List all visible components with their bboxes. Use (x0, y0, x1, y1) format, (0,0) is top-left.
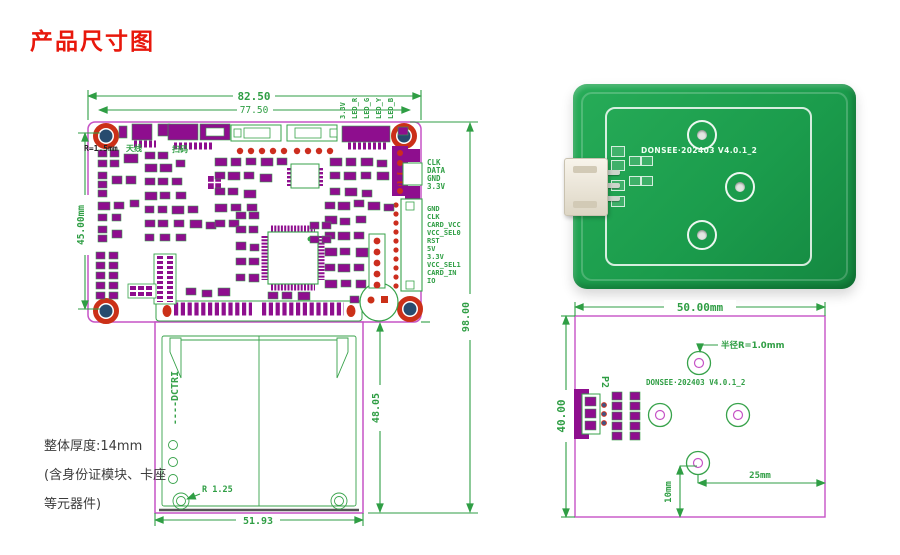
p3-connector (369, 234, 385, 288)
svg-text:CARD_IN: CARD_IN (427, 269, 457, 277)
svg-text:3.3V: 3.3V (427, 182, 446, 191)
dim-width-outer: 82.50 (237, 90, 270, 103)
svg-text:3.3V: 3.3V (427, 253, 445, 261)
dim-card-height: 48.05 (371, 393, 382, 423)
svg-text:GND: GND (427, 205, 440, 213)
silkscreen-text: DONSEE·202403 V4.0.1_2 (641, 146, 757, 155)
pin-holes-red (237, 148, 333, 154)
svg-text:IO: IO (427, 277, 435, 285)
connector1-pin-labels: CLK DATA GND 3.3V (427, 158, 446, 191)
note-line: (含身份证模块、卡座 (44, 461, 166, 490)
top-pin-labels: 3.3V LED_R LED_G LED_Y LED_B (339, 97, 395, 119)
dim-width: 50.00mm (677, 301, 724, 314)
svg-text:VCC_SEL1: VCC_SEL1 (427, 261, 461, 269)
card-connector (156, 300, 376, 321)
resistor-array (128, 284, 156, 298)
p2-label: P2 (599, 376, 610, 388)
svg-text:VCC_SEL0: VCC_SEL0 (427, 229, 461, 237)
screw-radius-label: R 1.25 (202, 485, 233, 495)
antenna-silkscreen-text: DONSEE·202403 V4.0.1_2 (646, 378, 745, 387)
dip-ic (154, 254, 176, 304)
svg-text:LED_R: LED_R (351, 97, 359, 119)
svg-text:LED_Y: LED_Y (375, 97, 383, 119)
hole-radius-label: 半径R=1.0mm (721, 340, 785, 351)
page-title: 产品尺寸图 (30, 22, 155, 56)
jst-connector (564, 158, 608, 216)
dim-card-width: 51.93 (243, 516, 273, 527)
note-line: 等元器件) (44, 490, 166, 519)
antenna-dimension-drawing: P2 50.00mm 40.00 10mm 25mm 半径R=1.0mm DON… (555, 298, 890, 550)
page: 产品尺寸图 ----DCTRI (0, 0, 900, 555)
smd-components (611, 146, 625, 157)
mount-hole-bottom (687, 220, 717, 250)
card-slot-label: ----DCTRI (170, 371, 181, 425)
svg-text:CARD_VCC: CARD_VCC (427, 221, 461, 229)
thickness-notes: 整体厚度:14mm (含身份证模块、卡座 等元器件) (44, 432, 166, 519)
svg-text:CLK: CLK (427, 213, 440, 221)
connector2-pin-labels: GND CLK CARD_VCC VCC_SEL0 RST 5V 3.3V VC… (427, 205, 461, 285)
dim-total-height: 98.00 (461, 302, 472, 332)
svg-text:LED_G: LED_G (363, 98, 371, 119)
svg-text:3.3V: 3.3V (339, 101, 347, 119)
small-ic (289, 164, 321, 188)
note-line: 整体厚度:14mm (44, 432, 166, 461)
dim-height: 40.00 (555, 399, 568, 432)
antenna-label: 天线 (126, 143, 142, 153)
dim-hole-offset-x: 25mm (749, 471, 771, 481)
scan-label: 扫码 (172, 144, 188, 154)
mount-hole-right (725, 172, 755, 202)
antenna-board-photo: DONSEE·202403 V4.0.1_2 (556, 64, 860, 296)
corner-radius-label: R=1.5mm (84, 144, 118, 153)
dim-width-inner: 77.50 (240, 105, 269, 116)
svg-text:RST: RST (427, 237, 440, 245)
dim-hole-offset-y: 10mm (664, 481, 674, 503)
dim-board-height: 45.00mm (76, 205, 87, 245)
svg-text:LED_B: LED_B (387, 98, 395, 119)
buzzer (360, 283, 398, 321)
svg-text:5V: 5V (427, 245, 436, 253)
